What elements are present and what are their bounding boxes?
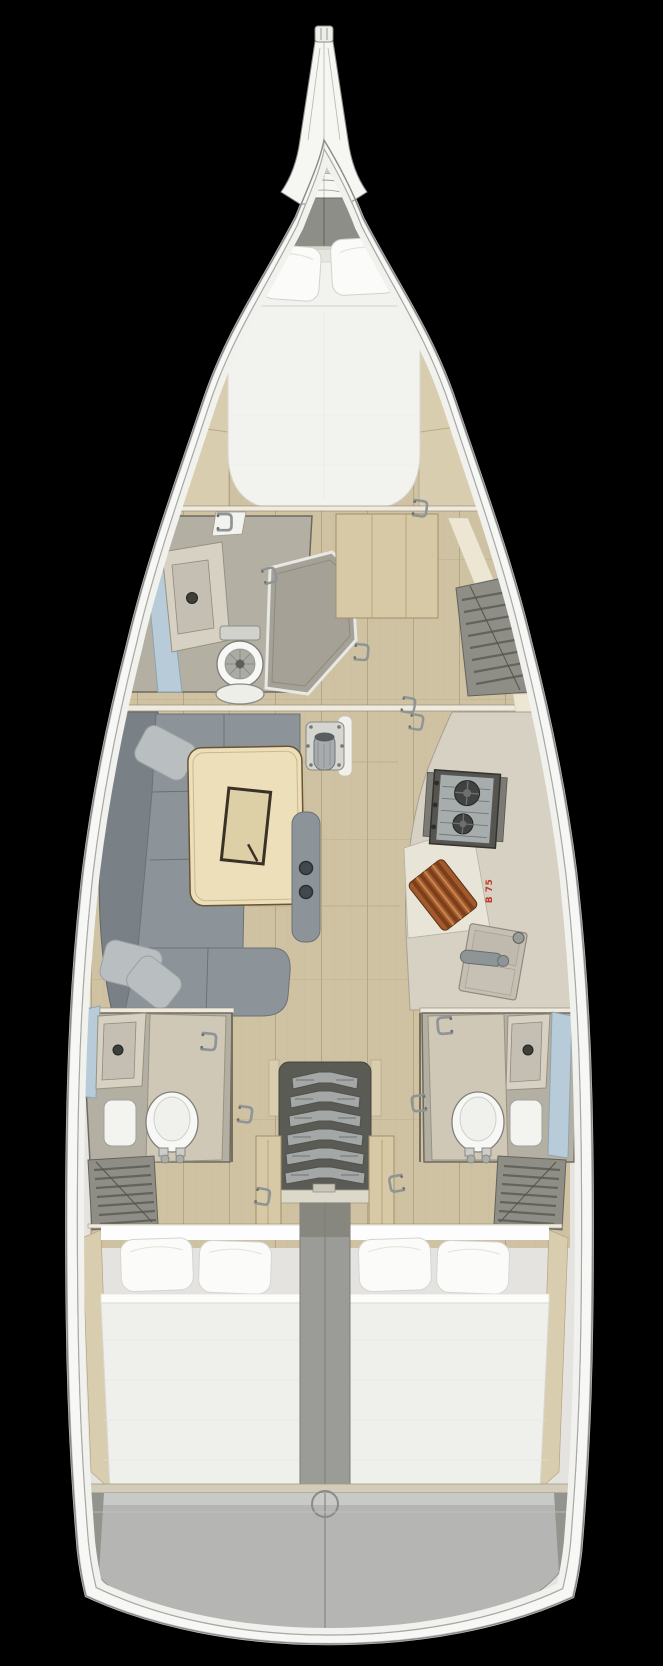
anchor-roller [315, 26, 333, 42]
aft-berth-starboard [349, 1303, 549, 1489]
sink-drain-icon [113, 1045, 123, 1055]
mast-post [306, 716, 352, 776]
forward-head-toilet [216, 626, 264, 704]
berth-pillow [436, 1240, 510, 1294]
bulkhead-salon [104, 705, 552, 711]
salon-bench [292, 812, 320, 942]
yacht-floorplan: B 75 [0, 0, 663, 1666]
berth-pillow [198, 1240, 272, 1294]
cup-holder-icon [300, 886, 313, 899]
berth-headboard [101, 1226, 301, 1240]
sink-drain-icon [523, 1045, 533, 1055]
central-bulkhead [300, 1203, 350, 1493]
hull-window-starboard-aft [548, 1012, 572, 1158]
table-cutout [221, 788, 270, 864]
floorplan-canvas: B 75 [0, 0, 663, 1666]
berth-head-shadow [230, 250, 418, 262]
berth-pillow [358, 1237, 432, 1291]
side-shelf-port [158, 300, 229, 508]
shower-mat [104, 1100, 136, 1146]
companionway-stairs [269, 1060, 381, 1203]
sink-drain-icon [187, 593, 198, 604]
galley-stove [423, 769, 508, 848]
galley-marking-label: B 75 [485, 879, 495, 904]
salon-table [188, 746, 305, 906]
bulkhead-forward [142, 506, 510, 511]
wardrobe [336, 514, 438, 618]
louver-locker-port-aft [88, 1156, 158, 1230]
berth-headboard [349, 1226, 549, 1240]
bowsprit [281, 26, 367, 204]
berth-pillow [120, 1237, 194, 1291]
aft-berth-port [101, 1303, 301, 1489]
cup-holder-icon [300, 862, 313, 875]
shower-mat [510, 1100, 542, 1146]
louver-locker-starboard-aft [494, 1156, 566, 1230]
